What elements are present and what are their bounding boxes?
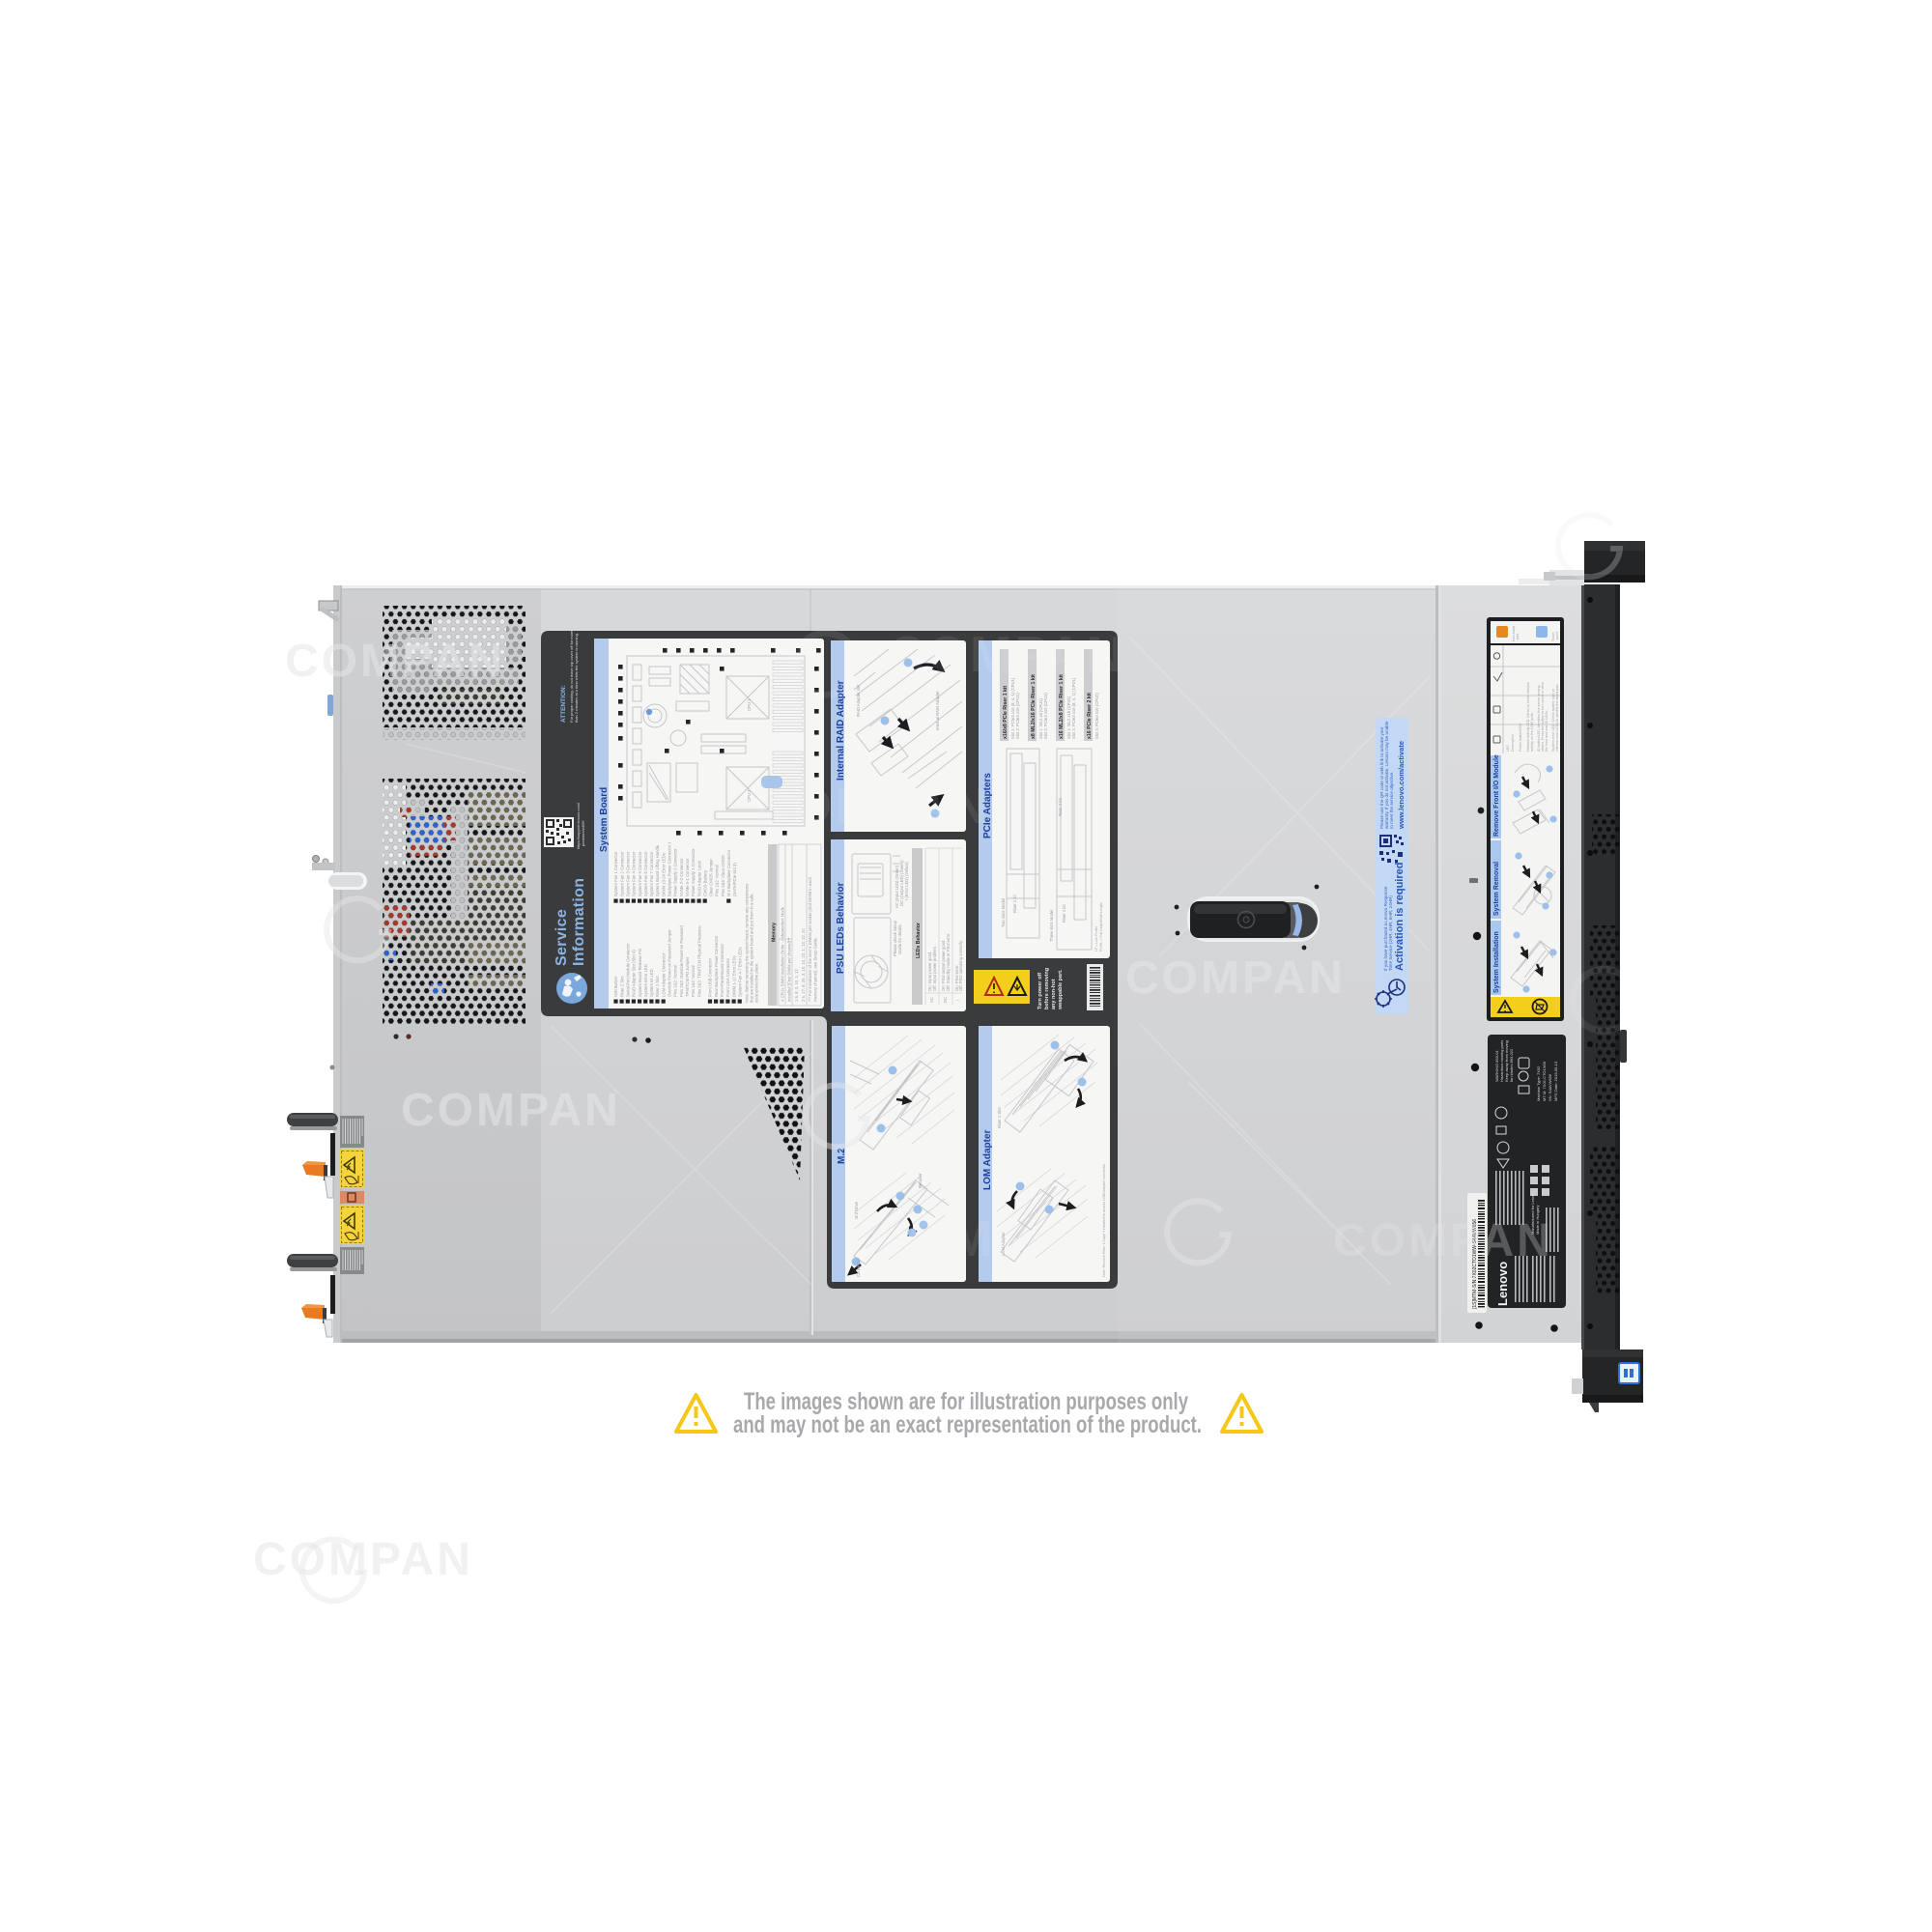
svg-text:*** For installation of the ne: *** For installation of the next 6 DIMMs… (808, 876, 812, 1002)
svg-text:M.2: M.2 (837, 1148, 847, 1164)
svg-text:Slot 2: PCIe3 x16 (8, 4, 1) (C: Slot 2: PCIe3 x16 (8, 4, 1) (CPU1) (1071, 677, 1076, 739)
svg-text:static-protective place.: static-protective place. (754, 962, 759, 1003)
svg-text:to meet the service objective.: to meet the service objective. (1389, 772, 1394, 830)
svg-text:Slot 2: PCIe3 x16 (CPU1): Slot 2: PCIe3 x16 (CPU1) (1043, 693, 1048, 739)
svg-text:Riser 2 Slot: Riser 2 Slot (619, 976, 624, 997)
svg-text:Off: Standby mode or PSU error: Off: Standby mode or PSU error. (946, 933, 951, 991)
svg-text:Front VGA Connector: Front VGA Connector (725, 957, 730, 997)
svg-text:Override Power-on Password Jum: Override Power-on Password Jumper (668, 929, 672, 997)
svg-text:System Board: System Board (599, 787, 610, 852)
svg-text:Guide for details.: Guide for details. (897, 923, 902, 954)
svg-text:System Fan 4-7 Error LEDs: System Fan 4-7 Error LEDs (737, 948, 742, 997)
svg-text:Installed (First DIMM per ch: Installed (First DIMM per channel)** (787, 937, 792, 1002)
svg-text:Internal RAID Adapter: Internal RAID Adapter (935, 691, 940, 730)
svg-text:LP = Low Profile,: LP = Low Profile, (1094, 925, 1098, 952)
svg-text:Serial-Port-Module Connector: Serial-Port-Module Connector (626, 943, 631, 997)
svg-text:DIMM 1-12 Error LEDs: DIMM 1-12 Error LEDs (731, 955, 736, 997)
svg-text:System Fan 1 Connector: System Fan 1 Connector (613, 851, 618, 896)
svg-text:swappable part.: swappable part. (1058, 969, 1064, 1009)
svg-text:AC: AC (929, 997, 934, 1003)
svg-text:Pins 1&2: Normal: Pins 1&2: Normal (715, 865, 720, 896)
svg-text:DIMM 13-24 Error LEDs: DIMM 13-24 Error LEDs (661, 853, 666, 896)
svg-text:x16/x8 PCIe Riser 1 kit: x16/x8 PCIe Riser 1 kit (1003, 686, 1009, 739)
svg-text:part: part (1516, 634, 1520, 639)
svg-text:TPM/TCM PD Jumper: TPM/TCM PD Jumper (685, 956, 690, 997)
svg-text:LOM Adapter Connector: LOM Adapter Connector (661, 952, 666, 997)
svg-text:Front-Panel-Board Connector: Front-Panel-Board Connector (720, 943, 724, 997)
svg-text:System Removal: System Removal (1493, 862, 1500, 916)
svg-text:2 5, 17, 8, 20, 3, 15, 10,: 2 5, 17, 8, 20, 3, 15, 10, 22, 1, 13, 12… (801, 928, 806, 1002)
svg-text:CPU 1: CPU 1 (747, 698, 752, 711)
svg-text:and may not be an exact repres: and may not be an exact representation o… (733, 1411, 1202, 1438)
svg-text:CMOS Battery: CMOS Battery (702, 869, 707, 896)
svg-text:Power button/LED: Power button/LED (1519, 723, 1522, 752)
svg-text:Off: PSU operating correctly.: Off: PSU operating correctly. (958, 940, 963, 991)
svg-text:internal error LEDs to identif: internal error LEDs to identify the fail… (1555, 684, 1559, 752)
svg-text:Power Supply 1 Connector: Power Supply 1 Connector (691, 848, 696, 896)
svg-text:Lenovo: Lenovo (1495, 1262, 1510, 1306)
svg-text:Retainer: Retainer (918, 1173, 923, 1188)
svg-text:NMI Button: NMI Button (613, 976, 618, 997)
svg-text:COMPAN: COMPAN (889, 627, 1125, 683)
svg-text:Connector: Connector (856, 1258, 861, 1277)
svg-text:the front and rear ID LEDs.: the front and rear ID LEDs. (1545, 710, 1548, 752)
svg-text:1 5, 8, 3, 10, 1, 12: 1 5, 8, 3, 10, 1, 12 (794, 969, 799, 1002)
svg-text:x8 ML2/x16 PCIe Riser 1 kit: x8 ML2/x16 PCIe Riser 1 kit (1031, 674, 1037, 739)
svg-text:Two slots Model: Two slots Model (1001, 898, 1006, 927)
svg-text:RAID Adapter slot: RAID Adapter slot (856, 684, 861, 717)
svg-text:Riser 1 kit: Riser 1 kit (1062, 904, 1066, 923)
svg-text:Information: Information (571, 878, 587, 966)
svg-text:System ID LED: System ID LED (649, 969, 654, 997)
svg-text:System Board Lifting Handle: System Board Lifting Handle (655, 844, 660, 896)
svg-text:System Fan 6 Connector: System Fan 6 Connector (643, 851, 648, 896)
svg-text:Riser 2 kit: Riser 2 kit (1058, 798, 1063, 816)
svg-text:Remove Front I/O Module: Remove Front I/O Module (1493, 754, 1500, 837)
svg-text:MT-M: 7X02-CTO1WW: MT-M: 7X02-CTO1WW (1542, 1062, 1547, 1101)
svg-text:Riser 1 kit: Riser 1 kit (1012, 895, 1017, 913)
svg-text:Activation is required: Activation is required (1394, 863, 1406, 971)
svg-text:Pins 2&3: Clear CMOS: Pins 2&3: Clear CMOS (721, 855, 725, 896)
svg-text:MFG Date: 2019-05-13: MFG Date: 2019-05-13 (1553, 1061, 1558, 1101)
svg-text:PSU LEDs Behavior: PSU LEDs Behavior (836, 882, 846, 974)
svg-text:Pins 1&2: Normal: Pins 1&2: Normal (673, 965, 678, 997)
svg-text:premiere/w656: premiere/w656 (581, 820, 585, 846)
svg-text:NVMe 2-3 Connector: NVMe 2-3 Connector (679, 858, 684, 896)
svg-text:Description: Description (1511, 734, 1515, 752)
svg-text:System Fan 3 Connector: System Fan 3 Connector (626, 851, 631, 896)
svg-text:System Fan 5 Connector: System Fan 5 Connector (638, 851, 642, 896)
svg-text:Three slots Model: Three slots Model (1049, 910, 1054, 942)
svg-text:Turn power off: Turn power off (1037, 973, 1043, 1009)
svg-text:Rear Backplane Power Connector: Rear Backplane Power Connector (714, 935, 719, 997)
svg-text:Time Service (2HR, 4HR, 6HR, 2: Time Service (2HR, 4HR, 6HR, 24HR) (1388, 895, 1393, 971)
svg-text:4 CPUs DIMM installation Ord: 4 CPUs DIMM installation Order - Indepen… (781, 906, 785, 1002)
svg-text:!: ! (955, 1000, 960, 1001)
svg-text:System Installation: System Installation (1493, 931, 1500, 993)
svg-text:System Board Release Pin: System Board Release Pin (638, 948, 642, 997)
svg-text:COMPAN: COMPAN (753, 779, 990, 835)
svg-text:System Fan 7 Connector: System Fan 7 Connector (649, 851, 654, 896)
svg-text:x16 ML2/x8 PCIe Riser 1 kit: x16 ML2/x8 PCIe Riser 1 kit (1059, 674, 1065, 739)
svg-text:point: point (1555, 632, 1559, 639)
svg-text:Pins 1&2: Normal: Pins 1&2: Normal (691, 965, 696, 997)
svg-text:! (Error LED) (Yellow): ! (Error LED) (Yellow) (904, 862, 909, 900)
svg-text:Pins 2&3: Override Power-on Pa: Pins 2&3: Override Power-on Password (679, 925, 684, 997)
svg-text:System Fan 4 Connector: System Fan 4 Connector (632, 851, 637, 896)
svg-text:before removing: before removing (1044, 968, 1050, 1009)
svg-text:M.2 Backplane Connector: M.2 Backplane Connector (726, 849, 731, 896)
svg-text:RAID Adapter Slot (Slot 4): RAID Adapter Slot (Slot 4) (632, 950, 637, 997)
svg-text:Riser 1 Slot: Riser 1 Slot (997, 1107, 1002, 1128)
svg-text:Memory: Memory (772, 923, 778, 942)
svg-text:Pins 2&3: TPM/TCM Physical Pre: Pins 2&3: TPM/TCM Physical Presence (696, 925, 701, 997)
svg-text:than 2 minutes at a time while: than 2 minutes at a time while the syste… (574, 633, 579, 723)
svg-text:System Error LED: System Error LED (643, 964, 648, 997)
svg-text:CPU 2: CPU 2 (747, 789, 752, 802)
svg-text:Off: Input power problem.: Off: Input power problem. (932, 946, 937, 991)
svg-text:SN: S4AVW656: SN: S4AVW656 (1548, 1073, 1552, 1101)
svg-text:Machine Type: 7X02: Machine Type: 7X02 (1536, 1065, 1541, 1101)
svg-text:COMPAN: COMPAN (1333, 1215, 1553, 1266)
svg-text:RAID Adapter Latch: RAID Adapter Latch (696, 860, 701, 896)
svg-text:Slot 2: PCIe3 x16 (CPU1): Slot 2: PCIe3 x16 (CPU1) (1015, 693, 1020, 739)
svg-text:activity on the LOM ports.: activity on the LOM ports. (1530, 712, 1534, 752)
svg-text:COMPAN: COMPAN (285, 636, 505, 687)
svg-text:(SATA/PCIe slot 3): (SATA/PCIe slot 3) (732, 863, 737, 896)
svg-text:any non-hot: any non-hot (1051, 979, 1057, 1009)
svg-text:memory channel), see Setup Gui: memory channel), see Setup Guide. (813, 937, 818, 1002)
svg-text:ATTENTION:: ATTENTION: (560, 685, 567, 723)
svg-text:System Fan 2 Connector: System Fan 2 Connector (619, 851, 624, 896)
svg-text:www.lenovo.com/activate: www.lenovo.com/activate (1397, 741, 1406, 830)
svg-text:COMPAN: COMPAN (401, 1085, 621, 1136)
svg-text:Riser 1 Slot: Riser 1 Slot (655, 976, 660, 997)
svg-text:NVMe 0-1 Connector: NVMe 0-1 Connector (685, 858, 690, 896)
svg-text:LEDs Behavior: LEDs Behavior (916, 923, 922, 958)
svg-text:Power Supply 2 Connector: Power Supply 2 Connector (673, 848, 678, 896)
svg-text:COMPAN: COMPAN (1125, 952, 1346, 1004)
svg-text:DC: DC (943, 997, 948, 1003)
svg-text:COMPAN: COMPAN (869, 1211, 1106, 1267)
svg-text:Service: Service (554, 909, 570, 966)
svg-text:M.2 Drive: M.2 Drive (854, 1201, 859, 1219)
svg-text:FH/HL = Full Height/Half Lengt: FH/HL = Full Height/Half Length (1099, 902, 1103, 952)
svg-text:Front USB Connector: Front USB Connector (708, 957, 713, 997)
svg-text:fan blades 893-022: fan blades 893-022 (1509, 1048, 1514, 1082)
svg-text:x16 PCIe Riser 2 kit: x16 PCIe Riser 2 kit (1087, 693, 1093, 739)
svg-text:LED: LED (1506, 745, 1510, 752)
svg-text:Clear CMOS Jumper: Clear CMOS Jumper (709, 859, 714, 896)
svg-text:Slot 3: PCIe3 x16 (CPU2): Slot 3: PCIe3 x16 (CPU2) (1094, 693, 1099, 739)
svg-text:Backplane Power Connector 1: Backplane Power Connector 1 (668, 841, 672, 896)
svg-text:LOM Adapter: LOM Adapter (982, 1129, 993, 1190)
